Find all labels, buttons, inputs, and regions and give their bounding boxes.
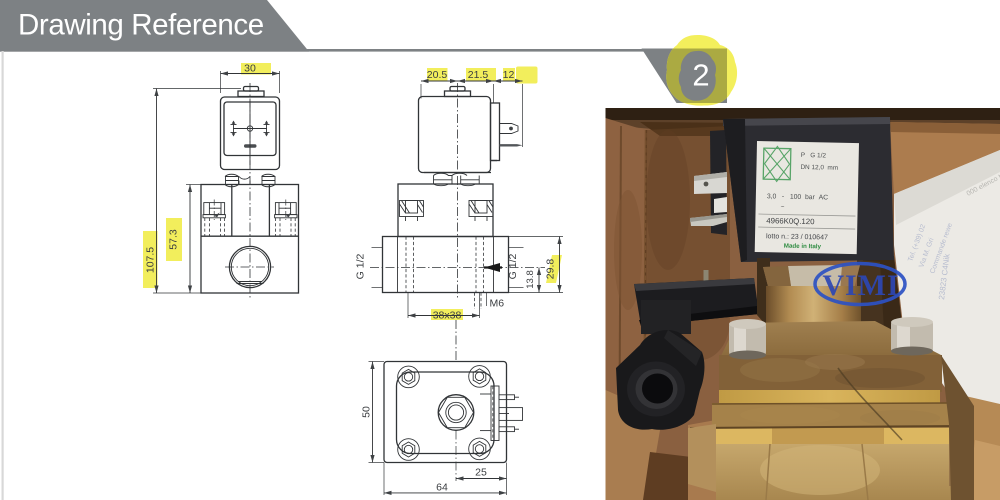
svg-text:64: 64 xyxy=(436,482,448,494)
svg-text:21.5: 21.5 xyxy=(468,69,489,81)
svg-text:50: 50 xyxy=(361,406,373,418)
svg-text:29.8: 29.8 xyxy=(545,259,557,280)
svg-text:3,0 - 100 bar AC: 3,0 - 100 bar AC xyxy=(767,193,828,201)
svg-text:DN 12,0 mm: DN 12,0 mm xyxy=(800,164,838,172)
svg-text:13.8: 13.8 xyxy=(525,270,536,289)
svg-text:30: 30 xyxy=(244,63,256,75)
svg-text:38x38: 38x38 xyxy=(433,310,462,322)
svg-text:25: 25 xyxy=(475,467,487,479)
svg-text:G 1/2: G 1/2 xyxy=(507,254,519,280)
svg-text:Drawing Reference: Drawing Reference xyxy=(18,9,264,42)
svg-text:lotto n.: 23 / 010647: lotto n.: 23 / 010647 xyxy=(766,233,828,241)
svg-text:20.5: 20.5 xyxy=(427,69,448,81)
svg-text:2: 2 xyxy=(692,58,709,93)
svg-text:12: 12 xyxy=(503,69,515,81)
svg-text:107.5: 107.5 xyxy=(145,247,157,273)
svg-text:~: ~ xyxy=(781,203,785,210)
svg-text:VIMI: VIMI xyxy=(822,269,899,302)
svg-text:M6: M6 xyxy=(490,298,505,310)
svg-text:Made in Italy: Made in Italy xyxy=(784,243,822,251)
svg-text:57.3: 57.3 xyxy=(168,229,180,250)
svg-text:G 1/2: G 1/2 xyxy=(355,254,367,280)
svg-text:4966K0Q.120: 4966K0Q.120 xyxy=(766,216,815,226)
svg-text:P G 1/2: P G 1/2 xyxy=(801,152,827,160)
